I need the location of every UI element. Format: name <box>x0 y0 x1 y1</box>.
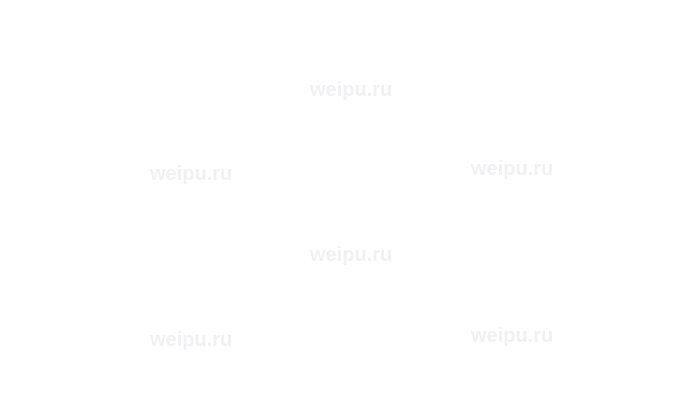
watermarked-image-canvas: weipu.ru weipu.ru weipu.ru weipu.ru weip… <box>0 0 696 407</box>
watermark-text: weipu.ru <box>150 330 232 350</box>
watermark-text: weipu.ru <box>310 245 392 265</box>
watermark-text: weipu.ru <box>471 326 553 346</box>
watermark-text: weipu.ru <box>310 80 392 100</box>
watermark-text: weipu.ru <box>150 164 232 184</box>
watermark-text: weipu.ru <box>471 159 553 179</box>
